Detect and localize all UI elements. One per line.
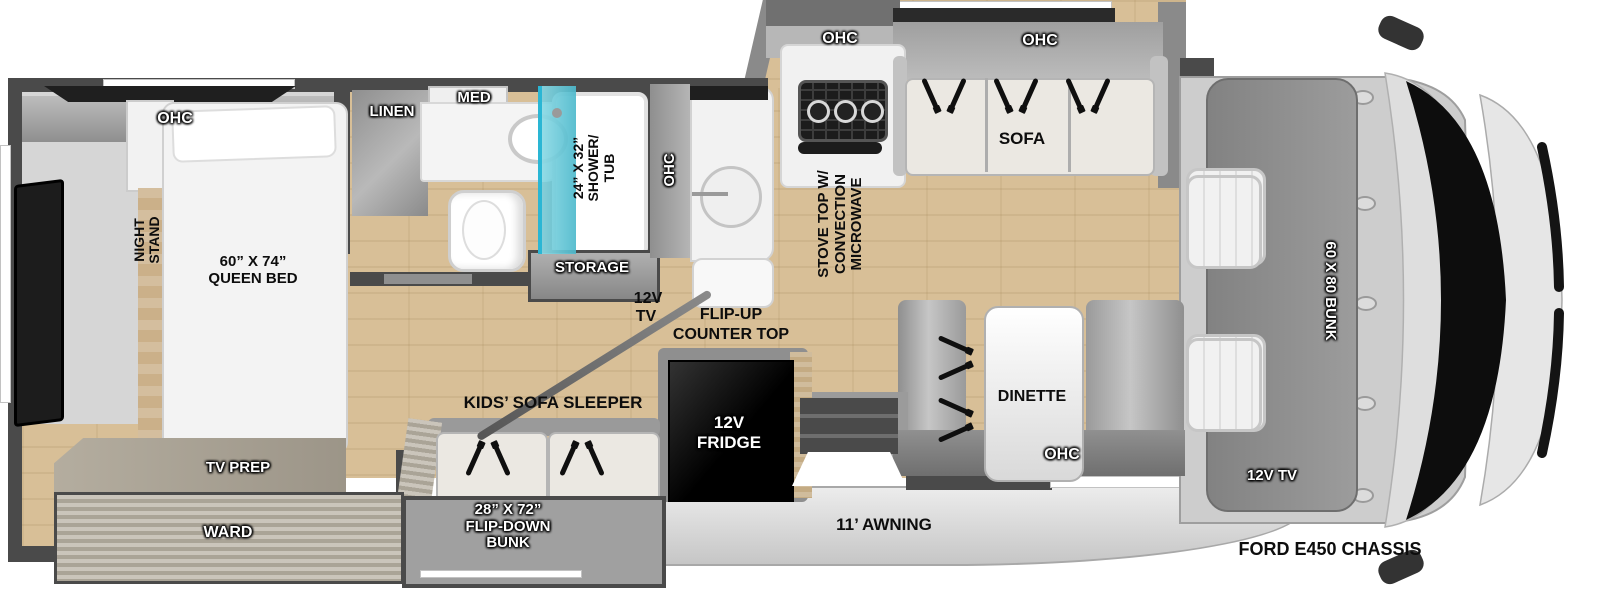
sofa-cushion-divider [985, 78, 988, 172]
burner-icon [807, 100, 830, 123]
chassis-label: FORD E450 CHASSIS [1210, 540, 1450, 560]
kitchen-faucet [692, 192, 728, 196]
entry-door [792, 452, 906, 486]
toilet-bowl [462, 200, 506, 260]
awning-label: 11’ AWNING [794, 516, 974, 535]
cab-seat-front [1186, 175, 1262, 269]
tv-prep-label: TV PREP [168, 460, 308, 477]
seatbelt-icon [1062, 70, 1114, 114]
kitchen-ohc-label: OHC [660, 140, 680, 200]
rivet-icon [1355, 296, 1377, 311]
entry-steps [800, 398, 898, 454]
hall-tv-label-line1: 12V [618, 290, 678, 308]
shower-label: 24” X 32” SHOWER/ TUB [566, 98, 622, 238]
shower-glass-edge [538, 86, 542, 254]
storage-label: STORAGE [530, 260, 654, 277]
flip-down-bunk-marker [420, 570, 582, 578]
seatbelt-icon [918, 70, 970, 114]
seatbelt-icon [930, 332, 974, 384]
bedroom-tv [14, 179, 64, 427]
kids-sofa-label: KIDS’ SOFA SLEEPER [433, 394, 673, 413]
burner-icon [861, 100, 884, 123]
seatbelt-icon [990, 70, 1042, 114]
cab-tv-label: 12V TV [1222, 468, 1322, 485]
bedroom-ohc-label: OHC [130, 110, 220, 128]
night-stand-label: NIGHT STAND [127, 185, 167, 295]
kitchen-slide-top-wall [766, 0, 900, 28]
bath-door [384, 274, 472, 284]
rv-floorplan: OHC NIGHT STAND 60” X 74” QUEEN BED TV P… [0, 0, 1600, 601]
kitchen-counter-backsplash [690, 86, 768, 100]
seatbelt-icon [556, 440, 608, 486]
sofa-ohc-label: OHC [1000, 32, 1080, 50]
kitchen-sink [700, 166, 762, 228]
seatbelt-icon [930, 394, 974, 446]
bath-faucet [552, 108, 562, 118]
ward-label: WARD [158, 524, 298, 542]
dinette-ohc-label: OHC [1022, 446, 1102, 464]
burner-icon [834, 100, 857, 123]
stove-label: STOVE TOP W/ CONVECTION MICROWAVE [813, 139, 869, 309]
linen-label: LINEN [352, 104, 432, 121]
flip-up-label-line2: COUNTER TOP [656, 326, 806, 344]
med-label: MED [444, 90, 504, 107]
flip-up-label-line1: FLIP-UP [666, 306, 796, 324]
rear-window-strip [0, 145, 11, 403]
mirror-icon [1375, 15, 1427, 53]
stove-top [798, 80, 888, 142]
flip-down-bunk-label: 28” X 72” FLIP-DOWN BUNK [418, 502, 598, 552]
stove-ohc-label: OHC [800, 30, 880, 48]
cab-seat-front [1186, 338, 1262, 432]
sofa-label: SOFA [972, 130, 1072, 149]
seatbelt-icon [462, 440, 514, 486]
fridge-label-line2: FRIDGE [669, 434, 789, 453]
queen-bed-label: 60” X 74” QUEEN BED [182, 254, 324, 287]
cab-bunk-label: 60 X 80 BUNK [1320, 216, 1340, 366]
fridge-label-line1: 12V [669, 414, 789, 433]
dinette-label: DINETTE [972, 388, 1092, 406]
